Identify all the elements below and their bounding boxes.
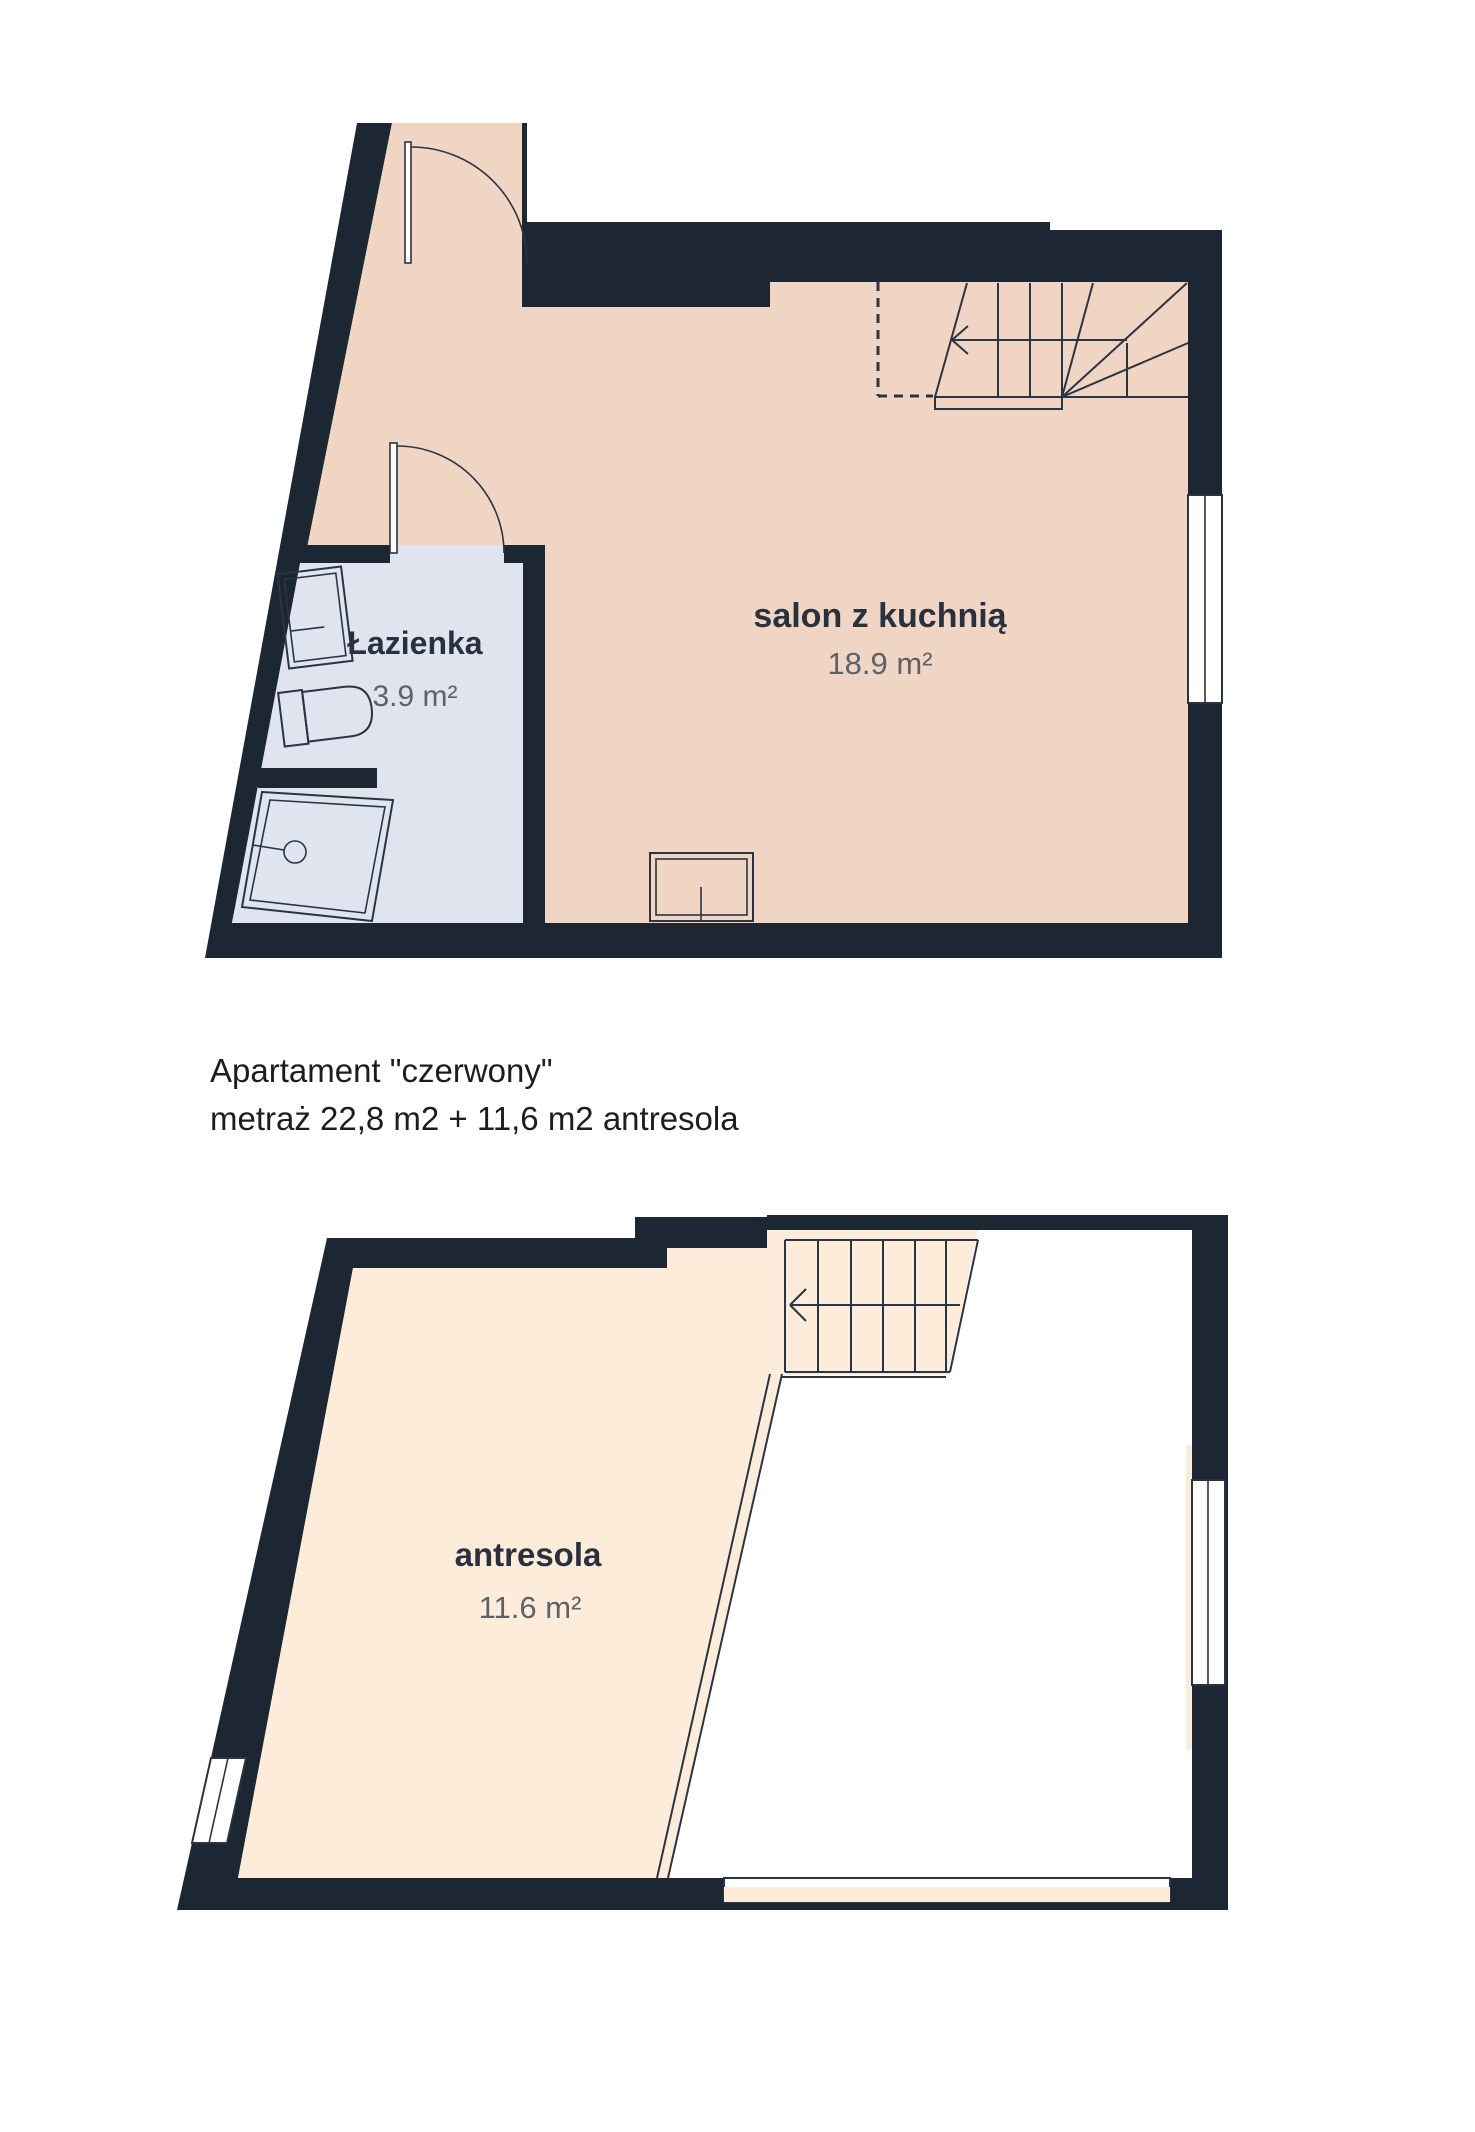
lower-window-right	[1192, 1480, 1225, 1685]
bathroom-wall-stub	[258, 768, 377, 788]
lower-window-bottom	[724, 1878, 1170, 1902]
upper-floor-plan: salon z kuchnią 18.9 m² Łazienka 3.9 m²	[205, 123, 1222, 958]
label-antresola: antresola	[455, 1536, 602, 1573]
bathroom-doorway	[390, 545, 504, 563]
label-salon-area: 18.9 m²	[827, 646, 932, 681]
label-lazienka-area: 3.9 m²	[372, 680, 457, 713]
label-antresola-area: 11.6 m²	[479, 1590, 582, 1625]
caption-line2: metraż 22,8 m2 + 11,6 m2 antresola	[210, 1100, 739, 1137]
label-lazienka: Łazienka	[347, 625, 482, 661]
label-salon: salon z kuchnią	[753, 597, 1007, 635]
floorplan-page: salon z kuchnią 18.9 m² Łazienka 3.9 m² …	[0, 0, 1475, 2132]
caption-line1: Apartament "czerwony"	[210, 1052, 553, 1089]
bathroom-wall-right	[523, 545, 545, 923]
upper-window-right	[1188, 495, 1222, 703]
bathroom-wall-top-left	[300, 545, 390, 563]
caption-block: Apartament "czerwony" metraż 22,8 m2 + 1…	[210, 1052, 739, 1137]
floorplan-drawing: salon z kuchnią 18.9 m² Łazienka 3.9 m² …	[0, 0, 1475, 2132]
mezzanine-plan: antresola 11.6 m²	[177, 1215, 1228, 1910]
